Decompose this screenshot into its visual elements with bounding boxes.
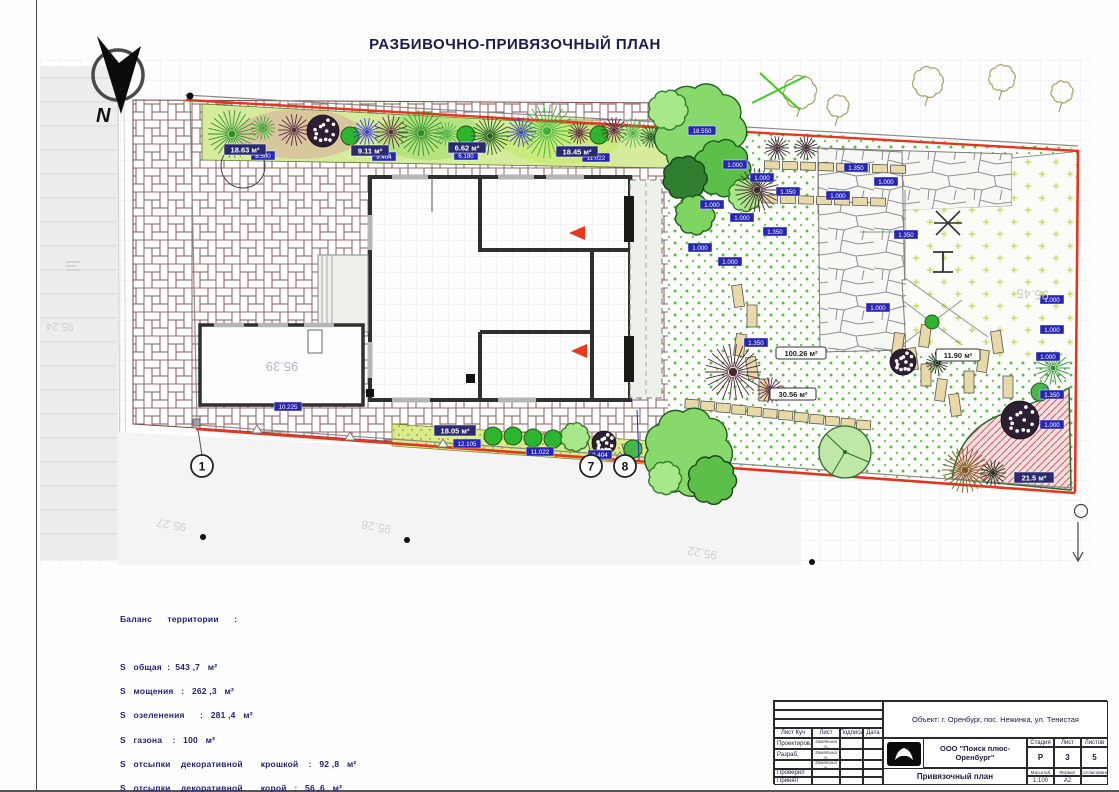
house — [318, 177, 662, 400]
tb-stage-label: Стадия — [1027, 738, 1054, 747]
elevation-label: 95.45 — [1016, 286, 1050, 303]
shrub-symbol — [590, 126, 608, 144]
dimension-tag: 1.350 — [894, 230, 918, 239]
svg-text:10.225: 10.225 — [279, 404, 298, 411]
dimension-tag: 1.350 — [1040, 390, 1064, 399]
tb-cell — [840, 777, 863, 785]
svg-text:1.350: 1.350 — [898, 232, 914, 239]
stepping-stone — [964, 371, 974, 393]
tb-sheets-value: 5 — [1081, 747, 1108, 768]
dimension-tag: 1.350 — [776, 187, 800, 196]
sector-tree-symbol — [819, 426, 871, 478]
porch — [318, 255, 368, 332]
dimension-tag: 1.000 — [718, 257, 742, 266]
tb-row-label — [774, 760, 812, 769]
tb-cell — [863, 769, 883, 777]
dimension-tag: 1.000 — [750, 173, 774, 182]
column — [624, 336, 634, 382]
stepping-stone — [852, 197, 867, 206]
dimension-tag: 1.000 — [826, 191, 850, 200]
dimension-tag: 1.000 — [1040, 420, 1064, 429]
tb-empty-row — [774, 701, 883, 710]
svg-text:1.000: 1.000 — [727, 162, 743, 169]
balance-line: S отсыпки декоративной корой : 56 ,6 м² — [120, 784, 587, 792]
shrub-symbol — [484, 427, 502, 445]
svg-text:1.000: 1.000 — [830, 193, 846, 200]
dimension-tag: 1.000 — [688, 243, 712, 252]
stepping-stone — [798, 196, 813, 205]
title-block: Лист Куч Лист Подпись Дата Проектиров. З… — [773, 700, 1107, 784]
svg-text:11.022: 11.022 — [531, 449, 550, 456]
balance-line: S газона : 100 м² — [120, 736, 587, 744]
tb-col-header: Дата — [863, 728, 883, 738]
tb-cell — [840, 738, 863, 749]
tb-company: ООО "Поиск плюс-Оренбург" — [923, 738, 1027, 768]
tb-cell — [863, 777, 883, 785]
tb-row-label: Разраб. — [774, 749, 812, 760]
drawing-title: РАЗБИВОЧНО-ПРИВЯЗОЧНЫЙ ПЛАН — [369, 35, 661, 53]
svg-text:1.000: 1.000 — [734, 215, 750, 222]
dimension-tag: 11.022 — [526, 447, 554, 456]
company-logo — [883, 738, 925, 770]
svg-text:1.350: 1.350 — [780, 189, 796, 196]
stepping-stone — [1003, 376, 1013, 398]
svg-text:1.000: 1.000 — [704, 202, 720, 209]
tb-drawing-name: Привязочный план — [883, 768, 1027, 785]
tb-cell — [812, 769, 840, 777]
stepping-stone — [872, 164, 887, 173]
tb-scale-value: 1:100 — [1027, 776, 1054, 785]
tb-sheet-value: 3 — [1054, 747, 1081, 768]
stepping-stone — [818, 163, 833, 172]
chimney — [308, 330, 322, 353]
tb-format-label: Формат — [1054, 768, 1081, 776]
elevation-label: 95.24 — [46, 320, 74, 333]
berry-tree-symbol — [890, 349, 916, 375]
svg-text:18.550: 18.550 — [693, 128, 712, 135]
tb-row-label: Принял — [774, 777, 812, 785]
shrub-symbol — [457, 126, 475, 144]
stepping-stone — [856, 420, 871, 430]
stepping-stone — [732, 405, 747, 415]
tb-row-label: Проверил — [774, 769, 812, 777]
tb-sheet-label: Лист — [1054, 738, 1081, 747]
svg-text:1.350: 1.350 — [748, 340, 764, 347]
dimension-tag: 1.350 — [744, 338, 768, 347]
dimension-tag: 1.000 — [874, 177, 898, 186]
balance-line: S отсыпки декоративной крошкой : 92 ,8 м… — [120, 760, 587, 768]
tb-stage-value: Р — [1027, 747, 1054, 768]
dimension-tag: 1.000 — [723, 160, 747, 169]
tb-cell — [840, 749, 863, 760]
marker-number: 7 — [588, 460, 595, 474]
stepping-stone — [778, 410, 793, 420]
tb-empty-row — [774, 719, 883, 728]
balance-line: S озеленения : 281 ,4 м² — [120, 711, 587, 719]
area-label: 18.05 м² — [441, 427, 470, 436]
tb-sheets-label: Листов — [1081, 738, 1108, 747]
stepping-stone — [825, 416, 840, 426]
berry-tree-symbol — [307, 115, 339, 147]
svg-text:1.000: 1.000 — [1044, 327, 1060, 334]
svg-text:1.350: 1.350 — [767, 229, 783, 236]
stepping-stone — [747, 305, 757, 327]
dimension-tag: 1.000 — [1036, 352, 1060, 361]
svg-text:1.000: 1.000 — [878, 179, 894, 186]
column — [624, 196, 634, 242]
stepping-stone — [782, 161, 797, 170]
tb-signature: Замятина А. — [812, 738, 840, 749]
stepping-stone — [780, 195, 795, 204]
balance-heading: Баланс территории : — [120, 615, 587, 623]
tree-canopy-symbol — [649, 462, 682, 495]
tb-cell — [840, 760, 863, 769]
marker-number: 1 — [199, 460, 206, 474]
shrub-symbol — [504, 427, 522, 445]
stepping-stone — [870, 198, 885, 207]
dimension-tag: 1.350 — [844, 163, 868, 172]
area-label: 21.5 м² — [1022, 474, 1047, 483]
tb-cell — [863, 760, 883, 769]
tb-cell — [863, 749, 883, 760]
dimension-tag: 1.350 — [763, 227, 787, 236]
stepping-stone — [747, 407, 762, 417]
drawing-sheet: 95.39 8.5009.4046.18011.02210.22512.1051… — [0, 0, 1119, 792]
svg-text:1.000: 1.000 — [870, 305, 886, 312]
tree-canopy-symbol — [561, 423, 590, 452]
garage-elevation-label: 95.39 — [266, 359, 299, 374]
tb-row-label: Проектиров. — [774, 738, 812, 749]
tb-empty-row — [774, 710, 883, 719]
svg-text:1.000: 1.000 — [722, 259, 738, 266]
svg-text:1.000: 1.000 — [1044, 422, 1060, 429]
tb-object: Объект: г. Оренбург, пос. Нежинка, ул. Т… — [883, 701, 1108, 738]
dimension-tag: 1.000 — [866, 303, 890, 312]
stepping-stone — [921, 364, 931, 386]
stepping-stone — [794, 412, 809, 422]
marker-number: 8 — [622, 460, 629, 474]
tb-col-header: Лист Куч — [774, 728, 812, 738]
svg-text:1.000: 1.000 — [1040, 354, 1056, 361]
area-label: 30.56 м² — [779, 390, 808, 399]
tb-col-header: Лист — [812, 728, 840, 738]
stepping-stone — [685, 399, 700, 409]
svg-text:1.350: 1.350 — [848, 165, 864, 172]
svg-text:1.000: 1.000 — [754, 175, 770, 182]
area-label: 100.26 м² — [784, 349, 818, 358]
shrub-symbol — [544, 430, 562, 448]
north-label: N — [96, 105, 111, 127]
area-label: 18.45 м² — [563, 148, 592, 157]
svg-text:1.350: 1.350 — [1044, 392, 1060, 399]
dimension-tag: 12.105 — [453, 439, 481, 448]
stepping-stone — [800, 162, 815, 171]
tb-signature: Замятина А. — [812, 749, 840, 760]
tb-approved-value — [1081, 776, 1108, 785]
tb-approved-label: Согласовано — [1081, 768, 1108, 776]
svg-text:1.000: 1.000 — [692, 245, 708, 252]
balance-line: S мощения : 262 ,3 м² — [120, 687, 587, 695]
area-label: 18.63 м² — [231, 146, 260, 155]
garage: 95.39 — [200, 325, 363, 405]
tb-signature: Замятина А. — [812, 760, 840, 769]
tb-scale-label: Масштаб — [1027, 768, 1054, 776]
dimension-tag: 1.000 — [730, 213, 754, 222]
dimension-tag: 1.000 — [1040, 325, 1064, 334]
tb-col-header: Подпись — [840, 728, 863, 738]
stepping-stone — [716, 403, 731, 413]
svg-text:6.180: 6.180 — [458, 153, 474, 160]
stepping-stone — [890, 165, 905, 174]
shrub-symbol — [925, 315, 939, 329]
area-label: 11.90 м² — [944, 351, 973, 360]
stepping-stone — [810, 414, 825, 424]
area-label: 6.62 м² — [455, 144, 480, 153]
area-label: 9.11 м² — [358, 147, 383, 156]
stepping-stone — [763, 409, 778, 419]
dimension-tag: 1.000 — [700, 200, 724, 209]
tb-cell — [863, 738, 883, 749]
dimension-tag: 18.550 — [688, 126, 716, 135]
dimension-tag: 10.225 — [274, 402, 302, 411]
svg-text:12.105: 12.105 — [458, 441, 477, 448]
stepping-stone — [700, 401, 715, 411]
tb-format-value: А2 — [1054, 776, 1081, 785]
berry-tree-symbol — [1001, 401, 1039, 439]
stepping-stone — [764, 161, 779, 170]
balance-block: Баланс территории : S общая : 543 ,7 м² … — [120, 599, 587, 792]
balance-line: S общая : 543 ,7 м² — [120, 663, 587, 671]
tb-cell — [812, 777, 840, 785]
shrub-symbol — [524, 429, 542, 447]
tb-cell — [840, 769, 863, 777]
